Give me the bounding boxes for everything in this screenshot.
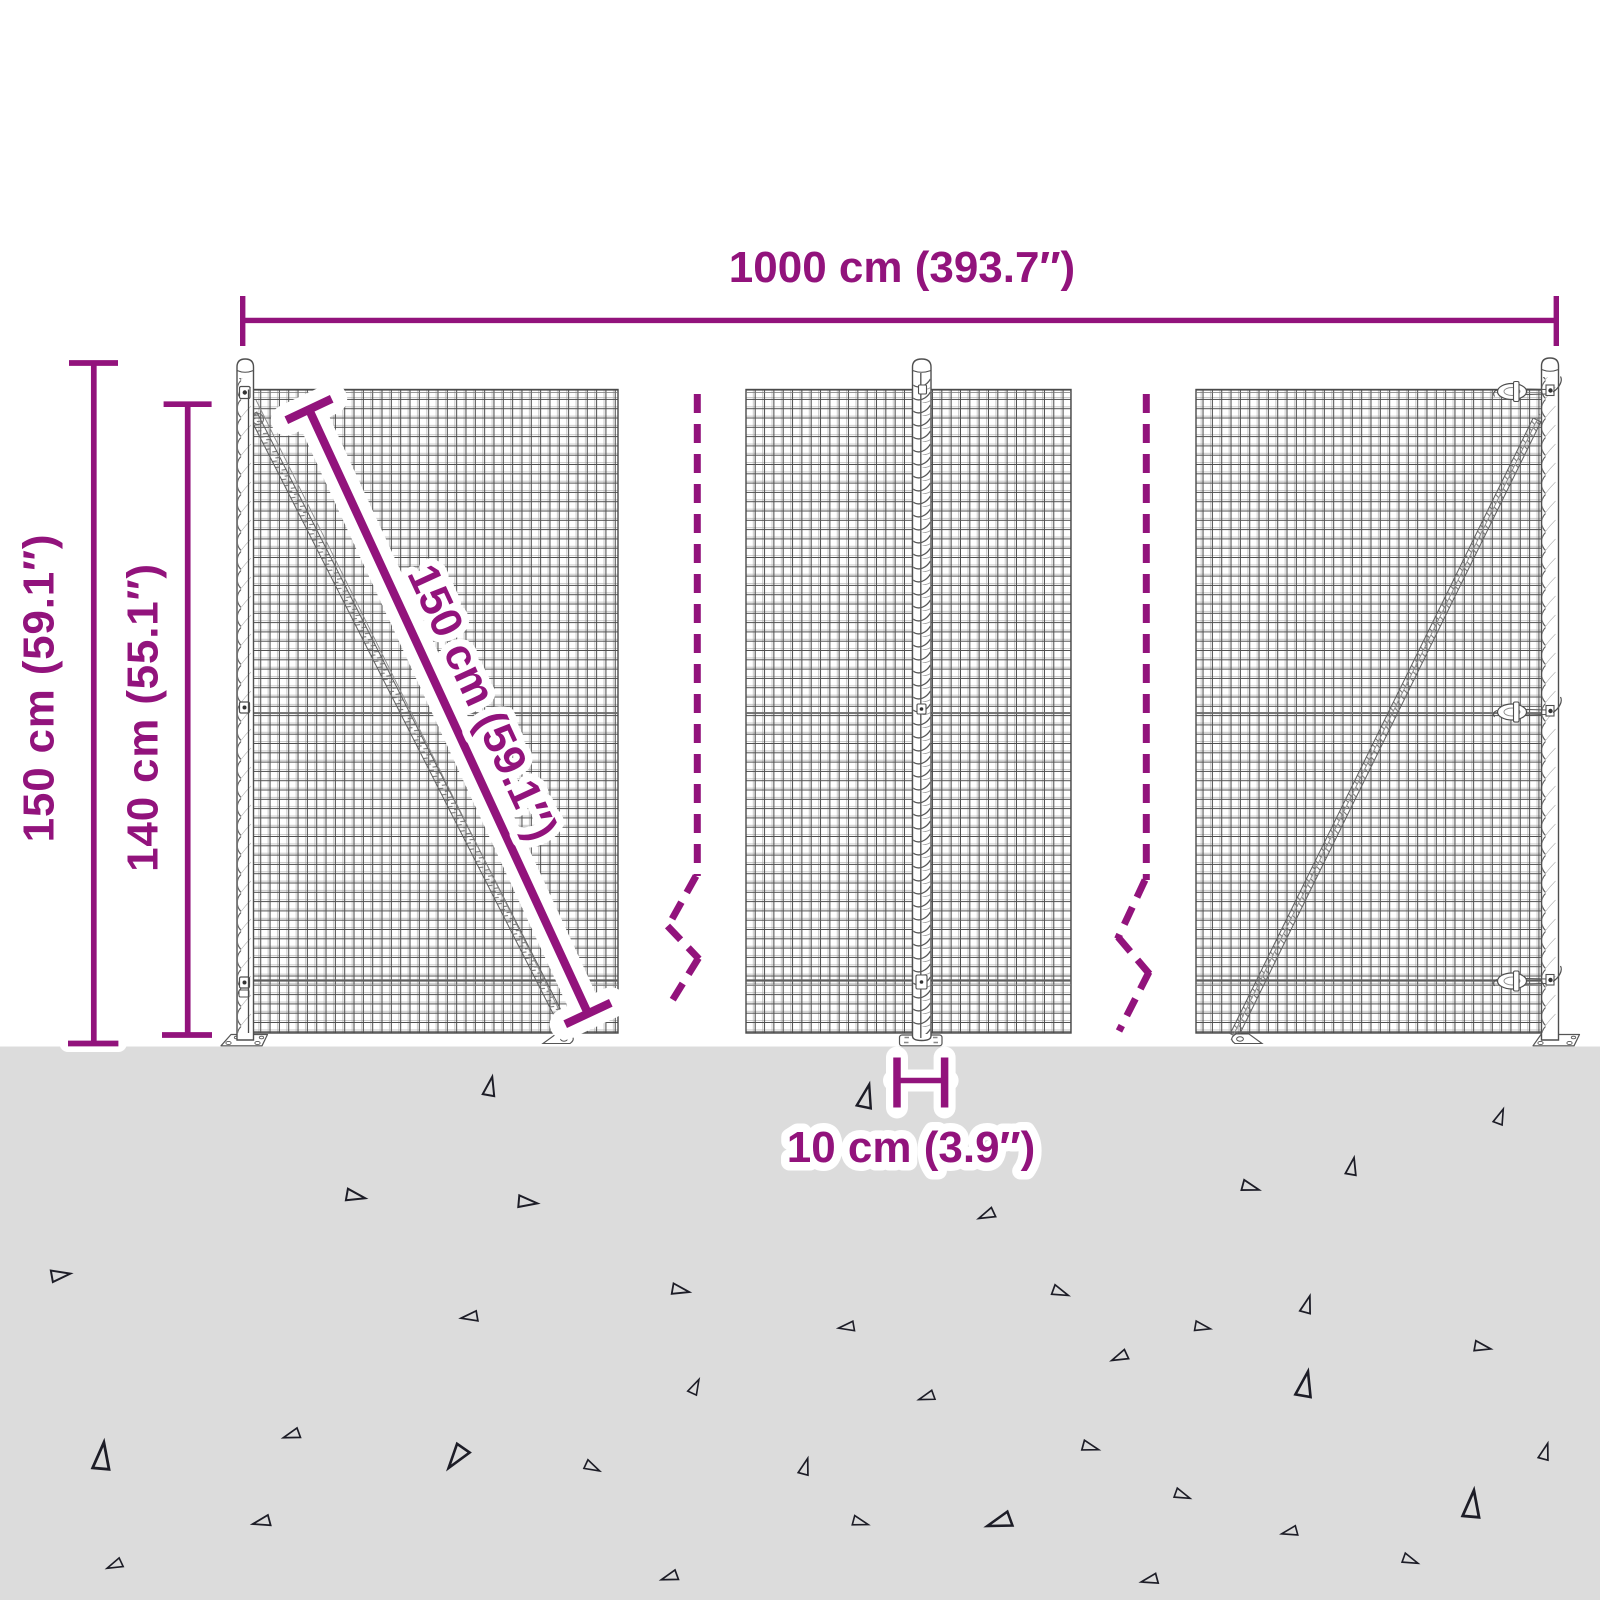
svg-text:140 cm (55.1″): 140 cm (55.1″): [119, 563, 168, 872]
svg-text:150 cm (59.1″): 150 cm (59.1″): [15, 534, 64, 843]
svg-text:10 cm (3.9″): 10 cm (3.9″): [787, 1123, 1036, 1172]
svg-text:1000 cm (393.7″): 1000 cm (393.7″): [729, 243, 1075, 292]
